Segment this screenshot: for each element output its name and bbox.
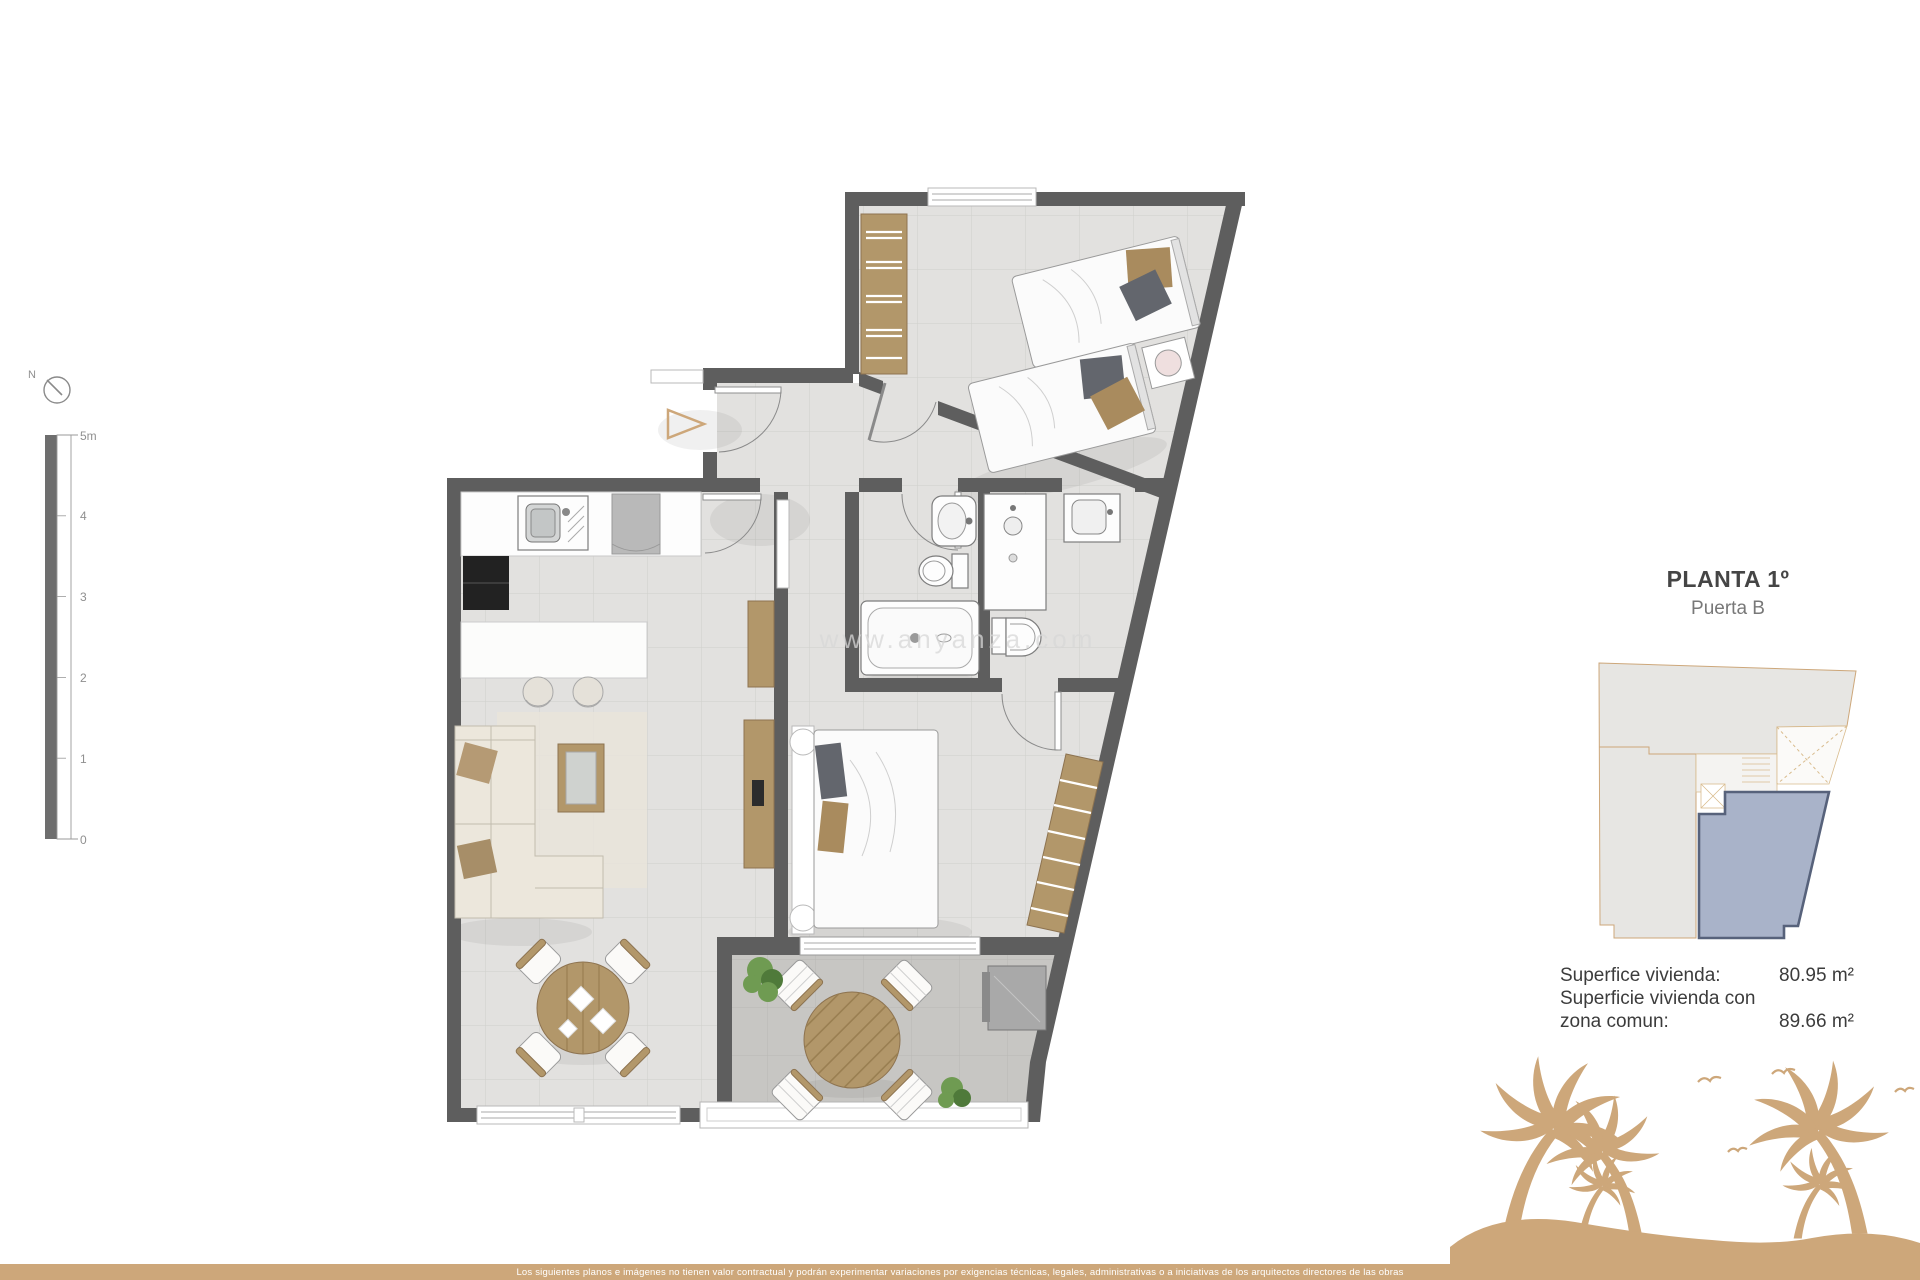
tv-console <box>744 720 774 868</box>
area-label: Superficie vivienda con <box>1560 987 1755 1010</box>
bedroom2-window <box>928 188 1036 206</box>
scale-tick-5m: 5m <box>80 429 97 443</box>
hall-cabinet <box>748 601 774 687</box>
terrace-sliding-door <box>800 937 980 955</box>
entry-step <box>651 370 703 383</box>
coffee-table <box>558 744 604 812</box>
compass-north-label: N <box>28 369 36 381</box>
page-title: PLANTA 1º <box>1592 566 1864 593</box>
sink-1 <box>932 496 976 546</box>
disclaimer-bar: Los siguientes planos e imágenes no tien… <box>0 1264 1920 1280</box>
ac-unit <box>982 966 1046 1030</box>
sand-dune <box>1450 1219 1920 1266</box>
surface-areas: Superfice vivienda: 80.95 m² Superficie … <box>1560 964 1854 1033</box>
kitchen-appliance <box>612 494 660 554</box>
scale-tick-0: 0 <box>80 833 87 847</box>
area-value: 89.66 m² <box>1779 1010 1854 1033</box>
terrace-balustrade <box>700 1102 1028 1128</box>
laundry-sink <box>1064 494 1120 542</box>
headboard <box>790 726 816 934</box>
palm-trees <box>1479 1056 1889 1238</box>
pocket-door <box>777 500 789 588</box>
scale-bar: 5m 4 3 2 1 0 <box>45 429 97 847</box>
sofa-pillow <box>457 839 497 879</box>
plan-header: PLANTA 1º Puerta B <box>1592 566 1864 620</box>
kitchen-sink <box>518 496 588 550</box>
compass-icon: N <box>28 369 70 403</box>
scale-tick-1: 1 <box>80 752 87 766</box>
floorplan-page: N 5m 4 3 2 1 0 <box>0 0 1920 1280</box>
scale-tick-4: 4 <box>80 509 87 523</box>
kitchen-island <box>461 622 647 678</box>
living-window <box>477 1106 680 1124</box>
vanity-2 <box>984 494 1046 610</box>
cooktop <box>463 556 509 610</box>
nightstand <box>790 905 816 931</box>
scale-tick-3: 3 <box>80 590 87 604</box>
pillow <box>817 801 848 853</box>
scale-tick-2: 2 <box>80 671 87 685</box>
watermark: www.anyanza.com <box>819 624 1097 654</box>
dining-table <box>537 962 629 1054</box>
wardrobe-2 <box>861 214 907 374</box>
disclaimer-text: Los siguientes planos e imágenes no tien… <box>516 1267 1403 1278</box>
site-key-plan <box>1592 652 1864 942</box>
toilet-1 <box>919 554 968 588</box>
highlighted-unit <box>1699 792 1829 938</box>
double-bed <box>814 730 938 928</box>
page-subtitle: Puerta B <box>1592 598 1864 620</box>
nightstand <box>790 729 816 755</box>
area-label: zona comun: <box>1560 1010 1669 1033</box>
patio-void <box>1777 726 1847 784</box>
area-label: Superfice vivienda: <box>1560 964 1721 987</box>
area-value: 80.95 m² <box>1779 964 1854 987</box>
palm-beach-illustration <box>1450 1040 1920 1266</box>
